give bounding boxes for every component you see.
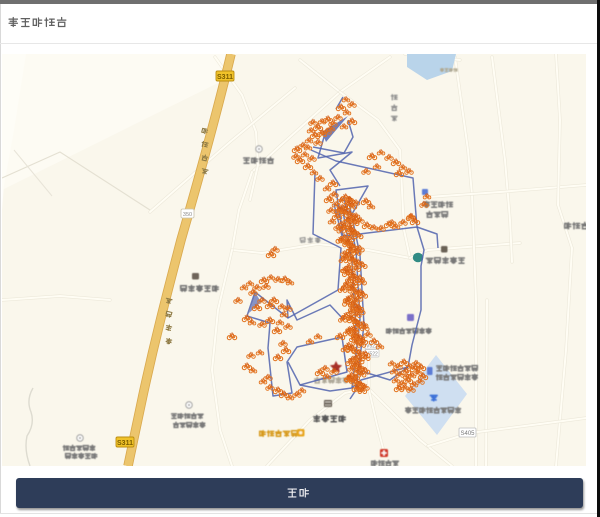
svg-text:S405: S405 bbox=[460, 431, 475, 437]
svg-text:S311: S311 bbox=[217, 74, 233, 81]
svg-text:S311: S311 bbox=[117, 440, 133, 447]
svg-text:350: 350 bbox=[183, 212, 192, 218]
